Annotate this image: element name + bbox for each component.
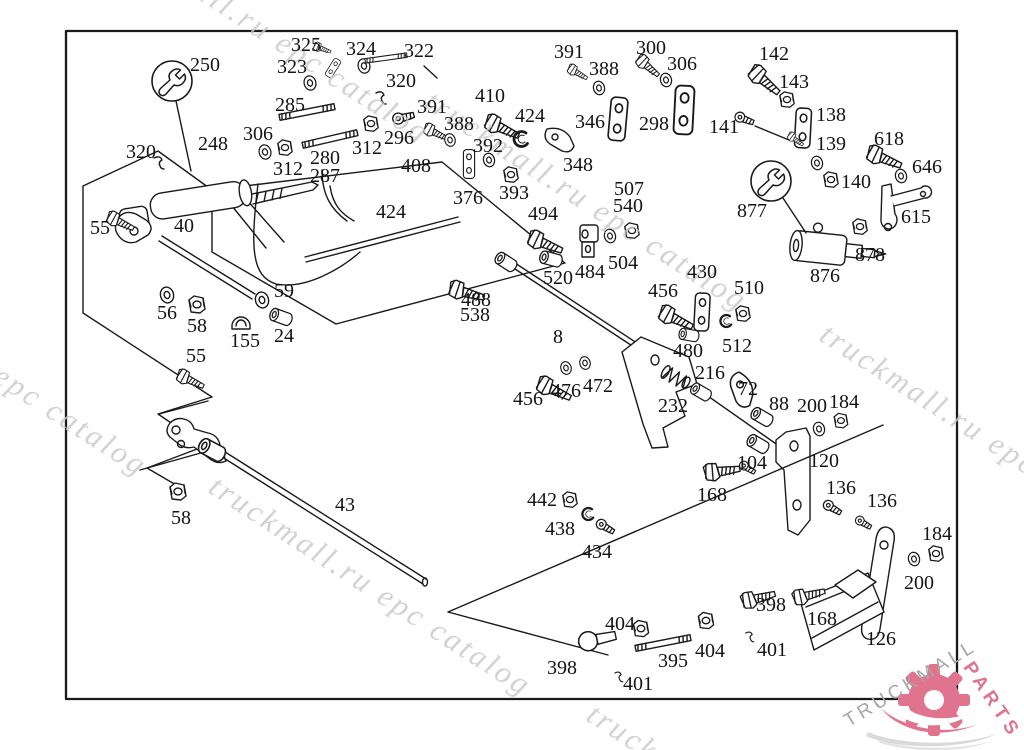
nut-glyph [563, 492, 577, 507]
stud-glyph [279, 104, 335, 121]
washer-glyph [559, 360, 572, 375]
clip-glyph [376, 92, 386, 104]
cyl-glyph [749, 406, 775, 428]
washer-glyph [254, 291, 271, 310]
plate-glyph [324, 58, 341, 79]
blob-glyph [545, 128, 574, 151]
washer-glyph [907, 551, 921, 567]
nut-glyph [189, 296, 205, 313]
bolt-glyph [174, 367, 206, 392]
stud-glyph [302, 130, 358, 148]
washer-glyph [257, 144, 272, 161]
nut-glyph [625, 223, 639, 238]
nut-glyph [170, 483, 186, 500]
fork-232 [622, 337, 697, 448]
nut-glyph [824, 172, 838, 187]
plate-glyph [673, 85, 694, 135]
wedge-glyph [232, 317, 250, 329]
bolt-glyph [482, 112, 522, 144]
washer-glyph [812, 421, 826, 437]
exploded-parts-drawing [0, 0, 1024, 750]
cyl-glyph [493, 251, 519, 274]
washer-glyph [443, 132, 456, 147]
block-glyph [580, 225, 598, 257]
bolt-glyph [633, 52, 662, 80]
washer-glyph [159, 286, 176, 305]
ball-glyph [738, 460, 757, 476]
nut-glyph [853, 219, 867, 234]
wrench-icon [152, 61, 192, 101]
ball-glyph [854, 515, 873, 531]
washer-glyph [894, 168, 908, 184]
nut-glyph [929, 546, 943, 561]
bolt-glyph [864, 143, 904, 173]
nut-glyph [834, 413, 848, 427]
rbolt-glyph [577, 626, 618, 652]
tray-cable [254, 184, 360, 285]
structure-lines [83, 66, 931, 655]
nut-glyph [698, 612, 713, 628]
cyl-glyph [268, 307, 293, 327]
clip-glyph [154, 157, 164, 169]
washer-glyph [810, 155, 824, 171]
ring-glyph [720, 315, 731, 327]
tray-rod [305, 217, 460, 262]
bolt-glyph [566, 63, 590, 83]
ball-glyph [734, 111, 756, 127]
cyl-glyph [196, 437, 228, 464]
nut-glyph [780, 92, 794, 107]
link-615 [881, 184, 931, 231]
ball-glyph [595, 518, 617, 536]
bolt-glyph [703, 459, 741, 482]
stud-glyph [365, 53, 407, 63]
nut-glyph [278, 140, 292, 155]
plate-glyph [608, 97, 629, 141]
ring-glyph [514, 132, 528, 147]
nut-glyph [736, 306, 750, 321]
plate-glyph [463, 150, 474, 179]
blob-glyph [721, 370, 762, 410]
ring-glyph [582, 508, 593, 520]
wrench-icon [751, 161, 791, 201]
washer-glyph [578, 355, 591, 370]
washer-glyph [592, 80, 606, 96]
pedal-126 [800, 527, 894, 650]
nut-glyph [504, 167, 518, 182]
ball-glyph [822, 499, 844, 517]
washer-glyph [659, 72, 673, 88]
plate-glyph [694, 293, 711, 332]
washer-glyph [302, 75, 317, 92]
parts-diagram-page: truckmall.ru epc catalogtruckmall.ru epc… [0, 0, 1024, 750]
nut-glyph [364, 116, 378, 131]
clip-glyph [746, 632, 754, 642]
bolt-glyph [740, 585, 777, 610]
bolt-glyph [745, 62, 784, 99]
bolt-glyph [312, 41, 332, 56]
bracket-120 [776, 428, 810, 535]
nut-glyph [633, 620, 648, 636]
cyl-glyph [745, 433, 771, 455]
washer-glyph [482, 152, 496, 168]
washer-glyph [603, 228, 617, 244]
ball-glyph [391, 109, 415, 125]
bolt-glyph [534, 374, 574, 406]
hardware-glyphs [104, 41, 943, 682]
truckmall-logo: TRUCKMALL PARTS [838, 640, 1024, 750]
clip-glyph [615, 672, 623, 682]
bolt-glyph [447, 279, 486, 306]
lever-40 [115, 212, 255, 299]
